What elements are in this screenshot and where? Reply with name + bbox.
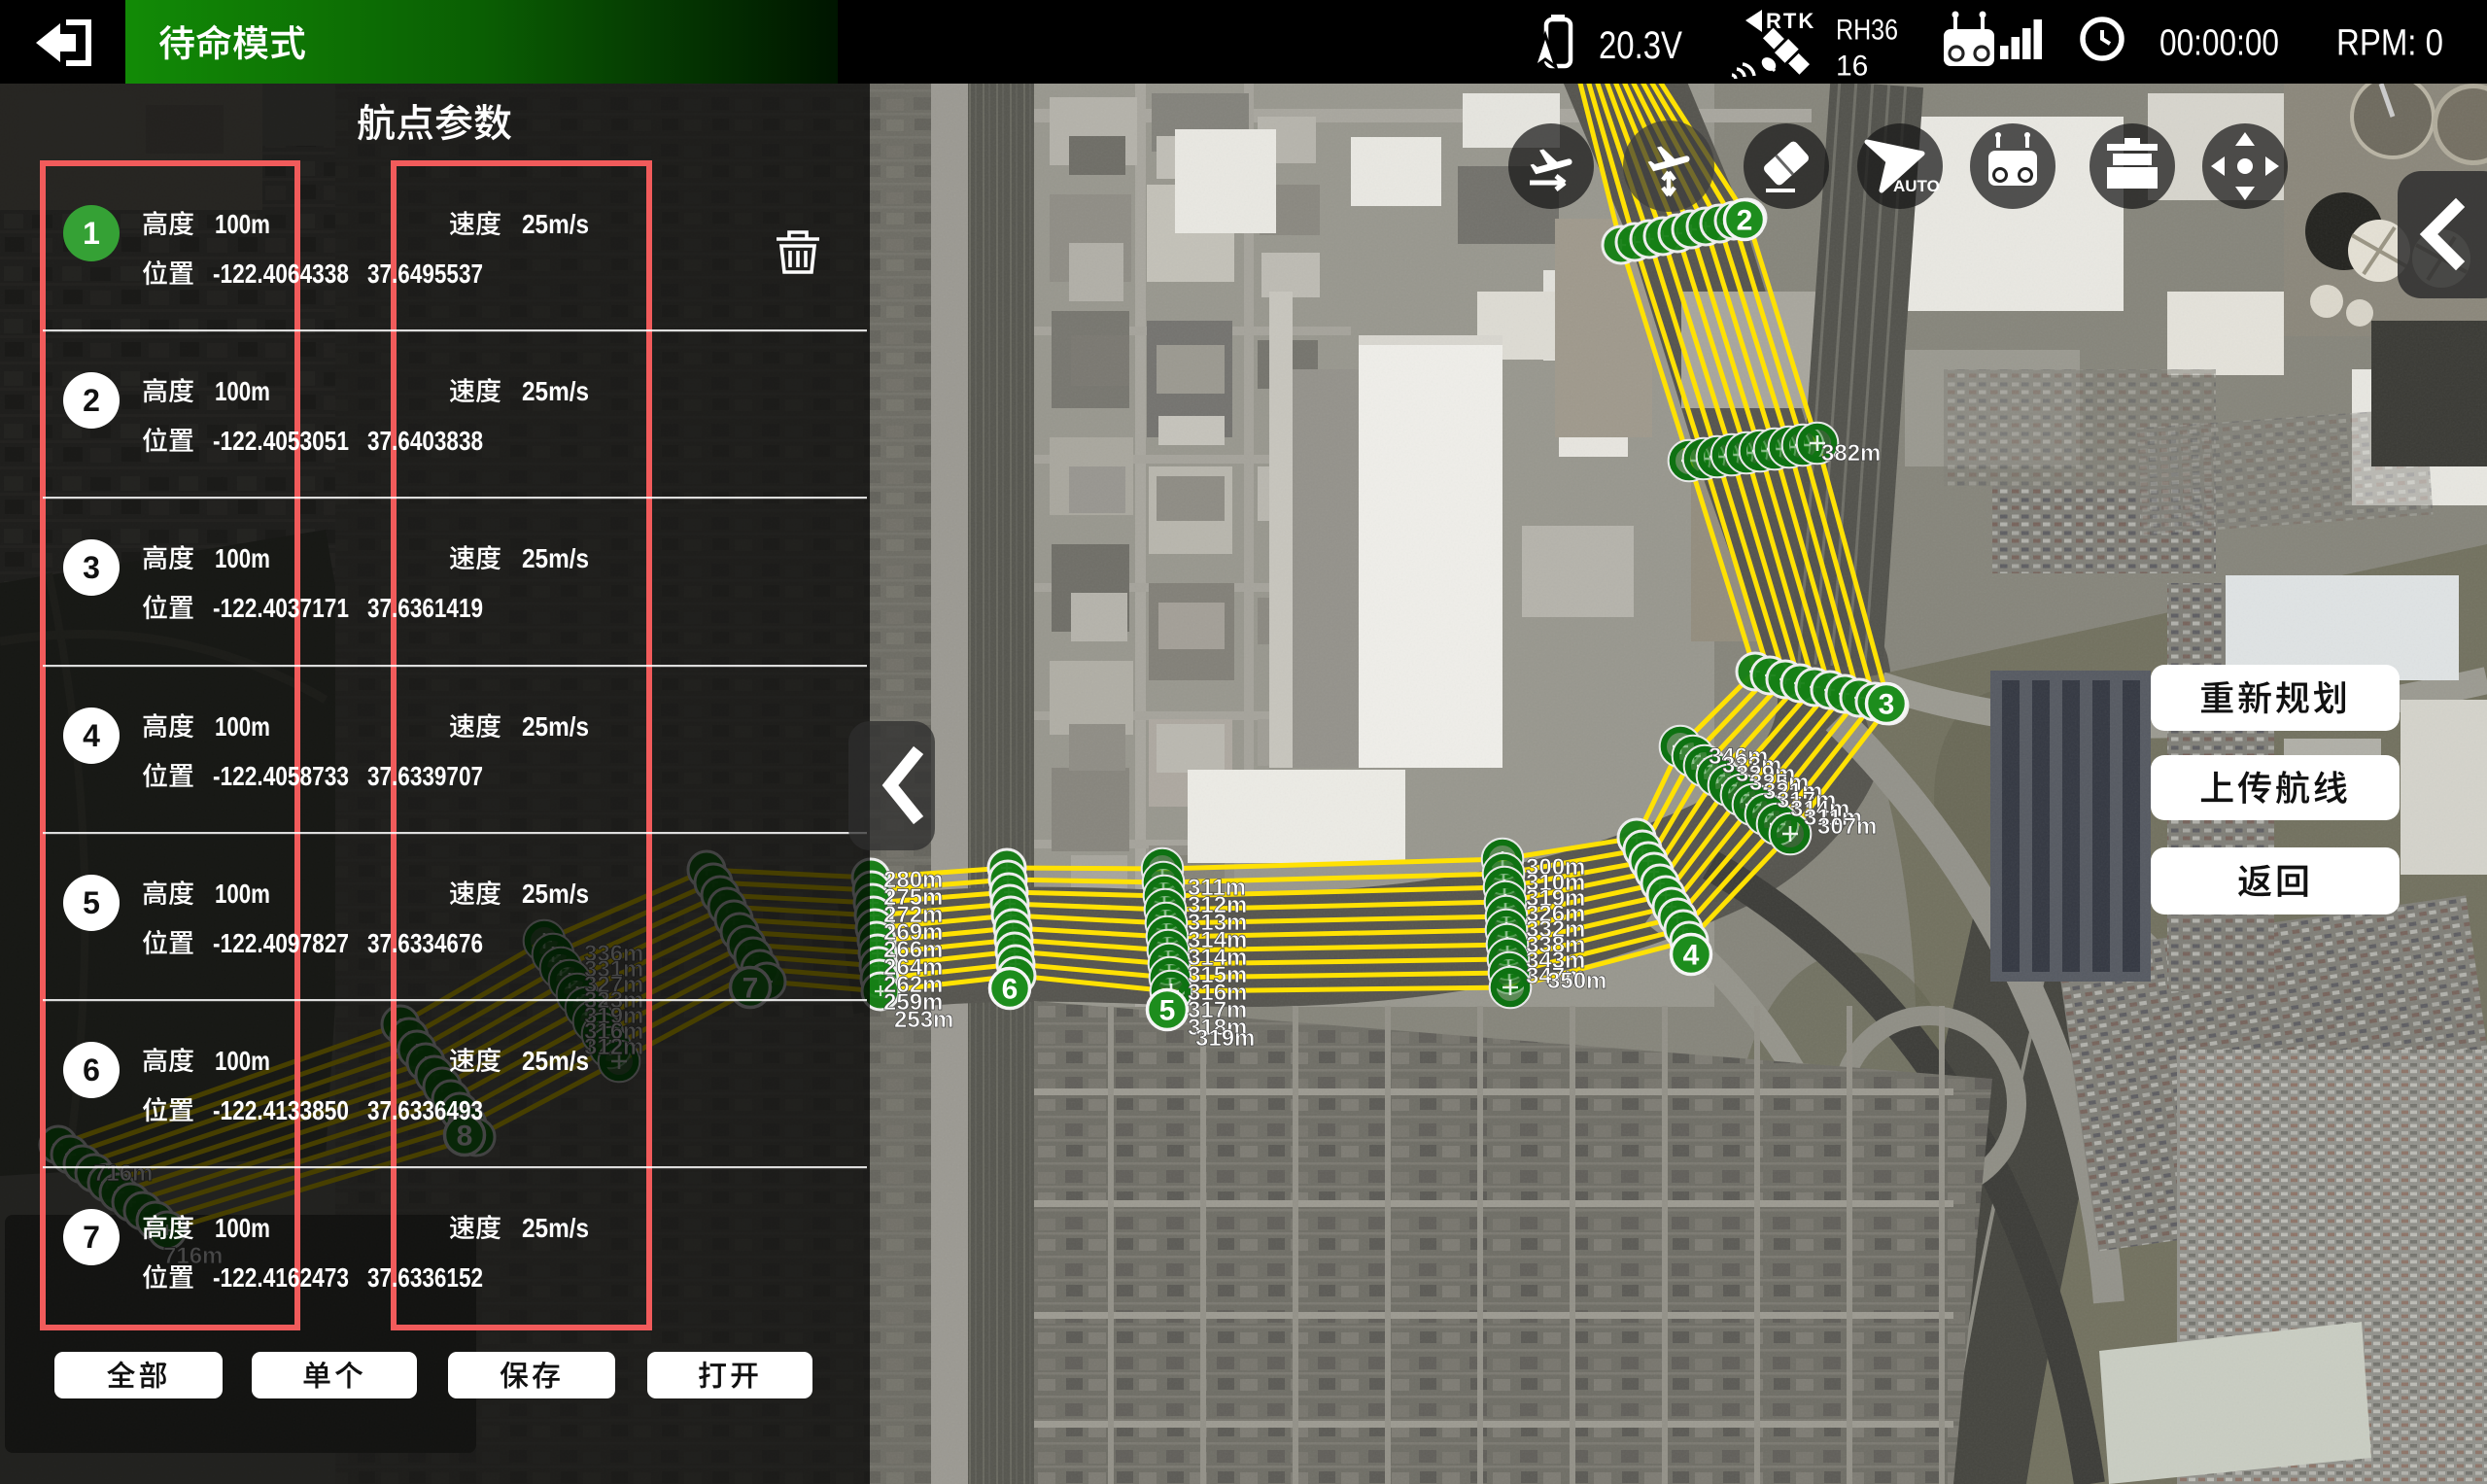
svg-text:25m/s: 25m/s [522,1046,589,1076]
svg-text:37.6339707: 37.6339707 [367,761,483,791]
svg-text:25m/s: 25m/s [522,543,589,573]
svg-text:3: 3 [83,550,100,585]
svg-text:37.6334676: 37.6334676 [367,928,483,958]
svg-text:-122.4037171: -122.4037171 [213,593,349,623]
svg-text:382m: 382m [1821,440,1881,466]
svg-text:100m: 100m [215,879,270,909]
svg-text:RPM: 0: RPM: 0 [2336,22,2443,63]
svg-text:7: 7 [83,1220,100,1255]
svg-text:307m: 307m [1817,813,1877,840]
svg-text:100m: 100m [215,711,270,742]
svg-text:2: 2 [1737,205,1753,237]
svg-text:100m: 100m [215,1213,270,1243]
svg-text:2: 2 [83,383,100,418]
svg-text:AUTO: AUTO [1893,177,1940,195]
svg-text:37.6336152: 37.6336152 [367,1262,483,1293]
svg-text:100m: 100m [215,376,270,406]
svg-text:6: 6 [1002,974,1019,1006]
svg-text:-122.4162473: -122.4162473 [213,1262,349,1293]
svg-text:RH36: RH36 [1836,15,1898,47]
svg-text:100m: 100m [215,209,270,239]
svg-text:25m/s: 25m/s [522,711,589,742]
svg-text:100m: 100m [215,543,270,573]
svg-text:6: 6 [83,1053,100,1087]
svg-text:100m: 100m [215,1046,270,1076]
svg-text:-122.4097827: -122.4097827 [213,928,349,958]
svg-text:16: 16 [1836,51,1868,83]
svg-text:4: 4 [83,718,100,753]
svg-text:3: 3 [1879,689,1895,721]
svg-text:37.6361419: 37.6361419 [367,593,483,623]
svg-text:5: 5 [1159,995,1176,1027]
svg-text:25m/s: 25m/s [522,376,589,406]
svg-text:1: 1 [83,216,100,251]
svg-text:37.6495537: 37.6495537 [367,259,483,289]
svg-text:20.3V: 20.3V [1599,24,1682,67]
svg-text:37.6336493: 37.6336493 [367,1095,483,1125]
svg-text:37.6403838: 37.6403838 [367,426,483,456]
svg-text:319m: 319m [1195,1025,1255,1052]
svg-text:-122.4133850: -122.4133850 [213,1095,349,1125]
svg-text:-122.4058733: -122.4058733 [213,761,349,791]
svg-text:-122.4053051: -122.4053051 [213,426,349,456]
svg-text:350m: 350m [1547,968,1606,994]
svg-text:253m: 253m [894,1007,953,1033]
svg-text:4: 4 [1683,940,1700,972]
svg-text:00:00:00: 00:00:00 [2159,22,2279,63]
svg-text:25m/s: 25m/s [522,879,589,909]
svg-text:-122.4064338: -122.4064338 [213,259,349,289]
svg-text:5: 5 [83,885,100,920]
svg-text:25m/s: 25m/s [522,1213,589,1243]
svg-text:25m/s: 25m/s [522,209,589,239]
